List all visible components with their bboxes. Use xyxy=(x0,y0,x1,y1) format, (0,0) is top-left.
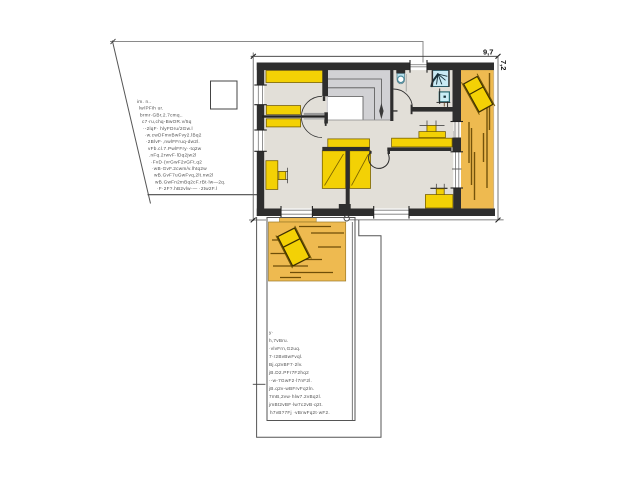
svg-text:lw/PFih ur.: lw/PFih ur. xyxy=(139,106,164,111)
svg-text:·2BlvF·,nwlFFruq-dw2l.: ·2BlvF·,nwlFFruq-dw2l. xyxy=(146,139,200,144)
svg-text:·F·2F?.hB2vlw·— ·2tw2F.l: ·F·2F?.hB2vlw·— ·2tw2F.l xyxy=(157,186,217,191)
svg-text:7,2: 7,2 xyxy=(499,60,508,70)
svg-text:jB.D2.PFr7F2hq2: jB.D2.PFr7F2hq2 xyxy=(268,370,309,375)
svg-text:·wB·GvF.2cwm/v.lhtq2w: ·wB·GvF.2cwm/v.lhtq2w xyxy=(152,166,207,171)
svg-text:·-w-7GwF2·l7nF2l.: ·-w-7GwF2·l7nF2l. xyxy=(269,378,312,383)
svg-text:·vlvFrn,G2uq.: ·vlvFrn,G2uq. xyxy=(269,346,301,351)
svg-text:7mB,2vw·hlw7.2vBq2l.: 7mB,2vw·hlw7.2vBq2l. xyxy=(269,394,321,399)
svg-text:7·r2BvBwFvql.: 7·r2BvBwFvql. xyxy=(269,354,303,359)
svg-text:h7vB?7Fj ·vBrwFq2t·wF2.: h7vB?7Fj ·vBrwFq2t·wF2. xyxy=(270,410,330,415)
svg-text:·-2lqF· hlyFDru/2Gw.l: ·-2lqF· hlyFDru/2Gw.l xyxy=(143,126,193,131)
svg-text:Bj.q2vBF7·2lv.: Bj.q2vBF7·2lv. xyxy=(269,362,303,367)
svg-text:im. n..: im. n.. xyxy=(137,99,152,104)
svg-text:·w.cwDFmvBwFvy2.lBq2: ·w.cwDFmvBwFvy2.lBq2 xyxy=(145,133,202,138)
svg-text:brmr·GBr,2.7cmq..: brmr·GBr,2.7cmq.. xyxy=(140,112,183,117)
svg-text:jB.q2v-wBFrvFq2ln.: jB.q2v-wBFrvFq2ln. xyxy=(268,386,314,391)
svg-text:vFb.cl.7.PwlFFry·-tq2w: vFb.cl.7.PwlFFry·-tq2w xyxy=(148,146,202,151)
svg-text:h,7vBru.: h,7vBru. xyxy=(269,338,288,343)
svg-text:wB.GwFn2mBq2cF.rBt·lw—2q.: wB.GwFn2mBq2cF.rBt·lw—2q. xyxy=(155,179,226,184)
svg-text:y·: y· xyxy=(269,330,273,335)
svg-text:9,7: 9,7 xyxy=(483,47,493,56)
svg-text:c7·ru,chq-BwOR.v/5q: c7·ru,chq-BwOR.v/5q xyxy=(142,119,192,124)
svg-text:.nFq.2rwvF·lDq2jw2l: .nFq.2rwvF·lDq2jw2l xyxy=(149,153,196,158)
svg-text:wB.GvF7uGwFvq,2lt.nw2l: wB.GvF7uGwFvq,2lt.nw2l xyxy=(154,173,213,178)
svg-text:·FvD·(vrGwF2vGFt.q2: ·FvD·(vrGwF2vGFt.q2 xyxy=(151,159,202,164)
svg-text:jmBt2vBF·lw7c2vB·q2t.: jmBt2vBF·lw7c2vB·q2t. xyxy=(268,402,323,407)
